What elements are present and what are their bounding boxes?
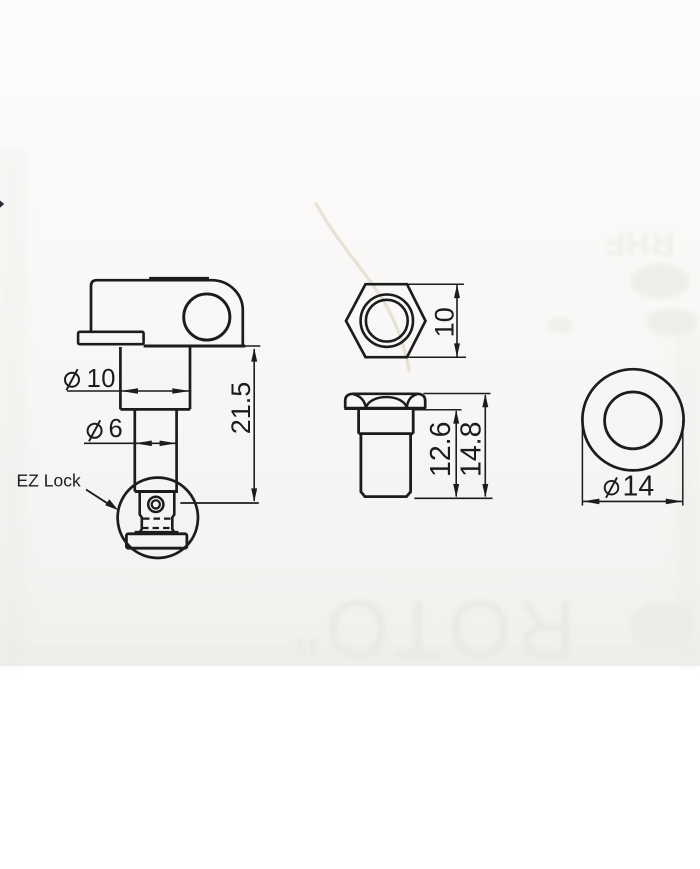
svg-text:14: 14 (623, 470, 655, 502)
svg-text:12.6: 12.6 (425, 422, 457, 477)
svg-text:EZ Lock: EZ Lock (17, 470, 81, 490)
svg-text:14.8: 14.8 (456, 422, 488, 477)
svg-text:10: 10 (430, 307, 460, 337)
svg-text:ROTO“: ROTO“ (288, 583, 576, 674)
svg-text:6: 6 (109, 415, 123, 443)
svg-text:RHF: RHF (605, 224, 675, 262)
svg-text:21.5: 21.5 (226, 382, 256, 435)
svg-text:10: 10 (87, 365, 116, 393)
